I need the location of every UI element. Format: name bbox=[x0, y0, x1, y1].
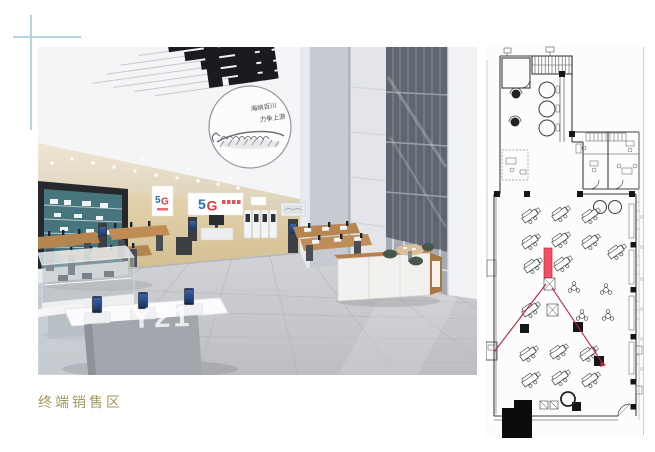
red-highlight bbox=[544, 248, 552, 278]
floor-plan-drawing bbox=[486, 46, 644, 438]
decor-vertical-line bbox=[30, 15, 32, 130]
watermark-text: Y21 bbox=[131, 301, 193, 335]
sign-logo-5: 5 bbox=[198, 196, 206, 212]
reception-desk bbox=[201, 228, 233, 240]
page-title: 终端销售区 bbox=[38, 392, 123, 412]
cube-seat bbox=[176, 237, 192, 255]
store-render-image: 海纳百川 力争上游 bbox=[38, 47, 477, 375]
sign-logo-g: G bbox=[207, 198, 218, 214]
panoramic-frame bbox=[281, 203, 305, 216]
right-divider-line bbox=[643, 47, 644, 435]
mural: 海纳百川 力争上游 bbox=[209, 86, 291, 168]
slide-page: 海纳百川 力争上游 bbox=[0, 0, 655, 452]
poster-logo-g: G bbox=[161, 197, 169, 208]
small-wall-sign bbox=[251, 197, 266, 205]
sign-monitor bbox=[209, 215, 224, 225]
decor-horizontal-line bbox=[13, 36, 81, 38]
five-g-poster: 5 G bbox=[152, 186, 173, 216]
